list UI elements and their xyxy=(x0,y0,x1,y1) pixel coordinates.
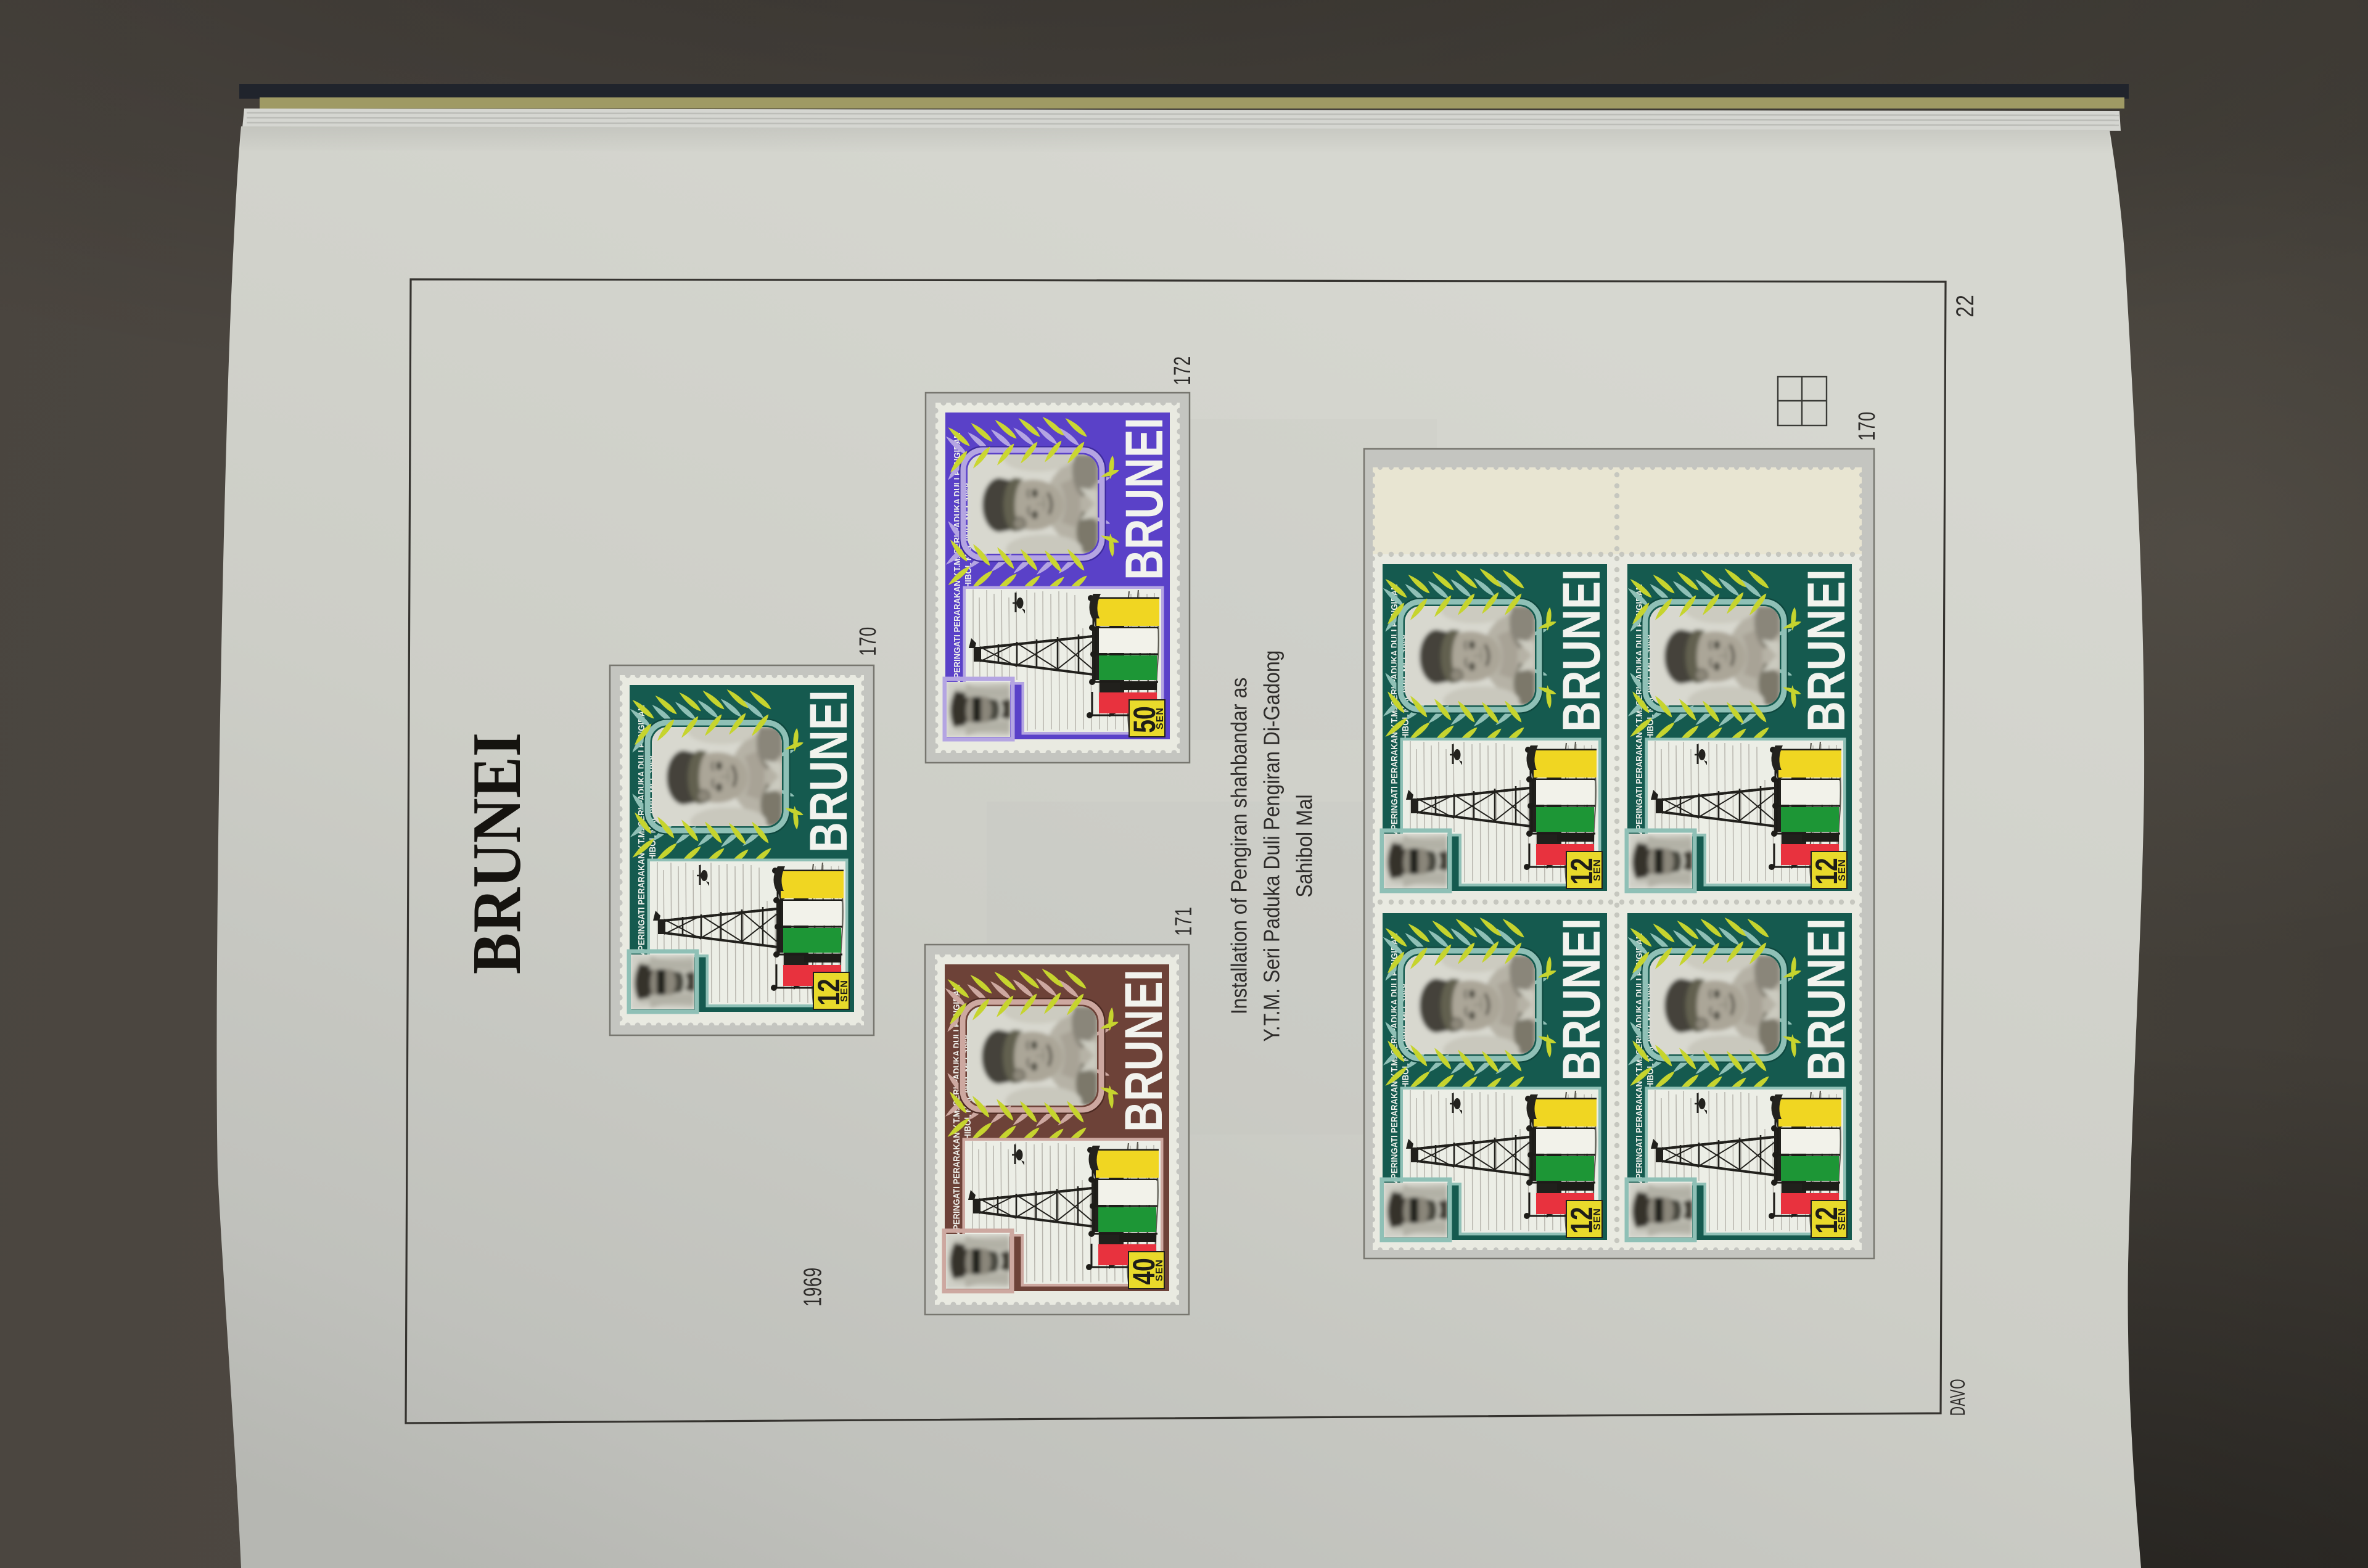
svg-text:SEN: SEN xyxy=(1837,1208,1848,1230)
svg-text:SEN: SEN xyxy=(1837,859,1848,881)
svg-text:172: 172 xyxy=(1170,356,1196,385)
svg-text:Sahibol Mal: Sahibol Mal xyxy=(1293,794,1317,897)
svg-text:Y.T.M. Seri Paduka Duli Pengir: Y.T.M. Seri Paduka Duli Pengiran Di-Gado… xyxy=(1260,651,1285,1042)
svg-text:22: 22 xyxy=(1951,294,1978,317)
svg-text:SEN: SEN xyxy=(839,980,850,1002)
svg-text:1969: 1969 xyxy=(799,1267,827,1307)
svg-text:SEN: SEN xyxy=(1154,1259,1165,1281)
svg-text:Installation of Pengiran shahb: Installation of Pengiran shahbandar as xyxy=(1227,678,1252,1015)
svg-text:SEN: SEN xyxy=(1592,859,1603,881)
svg-text:SEN: SEN xyxy=(1592,1208,1603,1230)
svg-text:BRUNEI: BRUNEI xyxy=(459,733,535,974)
svg-text:170: 170 xyxy=(1854,411,1880,441)
svg-text:170: 170 xyxy=(855,626,881,656)
svg-text:DAVO: DAVO xyxy=(1946,1379,1969,1416)
svg-text:SEN: SEN xyxy=(1155,707,1165,729)
svg-text:171: 171 xyxy=(1171,906,1197,936)
